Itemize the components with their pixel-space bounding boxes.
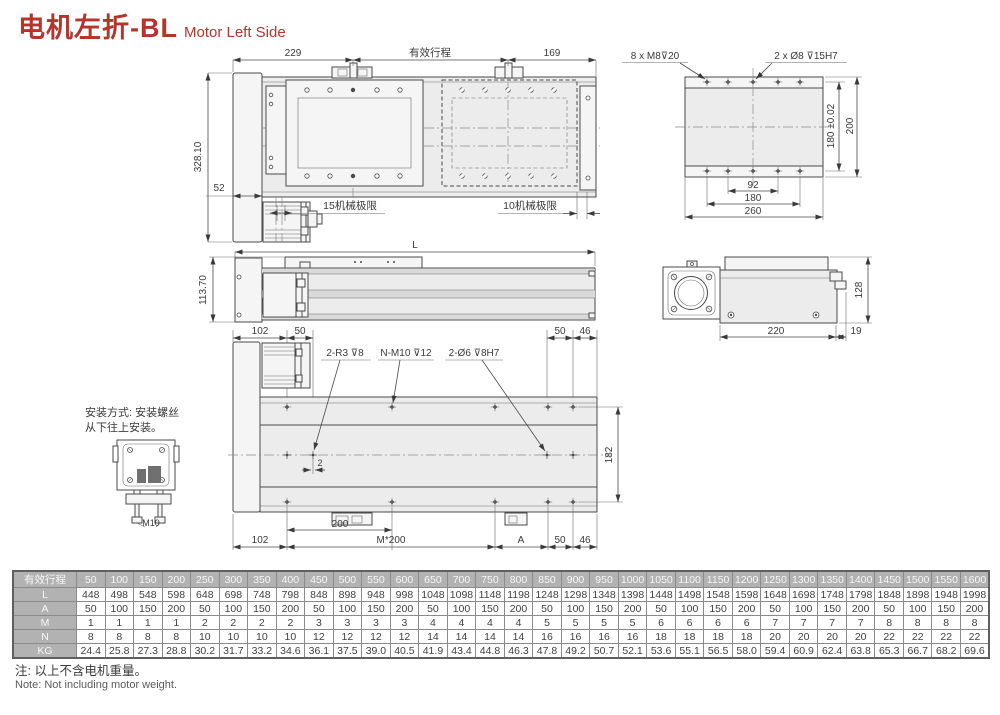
install-note-line2: 从下往上安装。 (85, 420, 162, 434)
table-header-cell: 200 (162, 571, 191, 588)
table-cell: 6 (732, 616, 761, 630)
dim-92: 92 (747, 180, 759, 191)
table-cell: 8 (932, 616, 961, 630)
table-header-cell: 400 (276, 571, 305, 588)
table-cell: 150 (362, 602, 391, 616)
install-note-line1: 安装方式: 安装螺丝 (85, 405, 179, 419)
table-header-cell: 1600 (960, 571, 989, 588)
table-header-cell: 1500 (903, 571, 932, 588)
table-cell: 1198 (504, 588, 533, 602)
table-cell: 200 (504, 602, 533, 616)
table-header-cell: 100 (105, 571, 134, 588)
table-cell: 1998 (960, 588, 989, 602)
table-cell: 46.3 (504, 644, 533, 659)
table-header-cell: 800 (504, 571, 533, 588)
table-cell: 7 (789, 616, 818, 630)
label-m8-holes: 8 x M8⊽20 (631, 51, 680, 62)
dim-2: 2 (317, 458, 322, 468)
table-row-header: L (13, 588, 77, 602)
limit-switch (332, 63, 523, 78)
dim-200-end: 200 (845, 117, 856, 134)
table-cell: 22 (875, 630, 904, 644)
table-cell: 1 (162, 616, 191, 630)
table-cell: 27.3 (134, 644, 163, 659)
table-cell: 58.0 (732, 644, 761, 659)
table-cell: 1098 (447, 588, 476, 602)
table-cell: 55.1 (675, 644, 704, 659)
table-cell: 20 (846, 630, 875, 644)
table-header-cell: 750 (476, 571, 505, 588)
table-cell: 200 (732, 602, 761, 616)
table-cell: 50 (305, 602, 334, 616)
table-cell: 200 (162, 602, 191, 616)
table-cell: 63.8 (846, 644, 875, 659)
table-cell: 5 (533, 616, 562, 630)
table-cell: 200 (276, 602, 305, 616)
table-cell: 100 (105, 602, 134, 616)
footnote-zh: 注: 以上不含电机重量。 (15, 664, 177, 678)
dim-102-bottom: 102 (252, 535, 269, 546)
table-cell: 5 (618, 616, 647, 630)
table-header-cell: 1200 (732, 571, 761, 588)
table-cell: 50.7 (590, 644, 619, 659)
table-cell: 43.4 (447, 644, 476, 659)
table-cell: 898 (333, 588, 362, 602)
table-cell: 33.2 (248, 644, 277, 659)
table-cell: 12 (305, 630, 334, 644)
table-cell: 1048 (419, 588, 448, 602)
table-cell: 4 (419, 616, 448, 630)
table-row-strokes: 有效行程501001502002503003504004505005506006… (13, 571, 989, 588)
table-cell: 100 (789, 602, 818, 616)
table-cell: 22 (932, 630, 961, 644)
table-cell: 200 (618, 602, 647, 616)
table-cell: 41.9 (419, 644, 448, 659)
table-cell: 14 (476, 630, 505, 644)
table-cell: 10 (276, 630, 305, 644)
table-cell: 648 (191, 588, 220, 602)
table-cell: 6 (675, 616, 704, 630)
table-cell: 1148 (476, 588, 505, 602)
dim-19: 19 (850, 326, 862, 337)
dim-L: L (412, 240, 418, 251)
table-cell: 200 (390, 602, 419, 616)
dim-A: A (518, 535, 525, 546)
table-cell: 1548 (704, 588, 733, 602)
table-cell: 1 (105, 616, 134, 630)
table-cell: 8 (903, 616, 932, 630)
technical-drawing: 229 有效行程 169 328.10 52 15机械极限 10机械极限 (0, 0, 1000, 566)
table-row-L: L448498548598648698748798848898948998104… (13, 588, 989, 602)
dim-200-bottom: 200 (332, 519, 349, 530)
label-r3: 2-R3 ⊽8 (326, 348, 364, 359)
table-cell: 24.4 (77, 644, 106, 659)
motor-bottom (262, 343, 310, 388)
table-cell: 18 (704, 630, 733, 644)
table-cell: 14 (504, 630, 533, 644)
table-cell: 7 (761, 616, 790, 630)
table-cell: 200 (960, 602, 989, 616)
table-cell: 52.1 (618, 644, 647, 659)
table-cell: 18 (647, 630, 676, 644)
table-cell: 100 (447, 602, 476, 616)
dim-52: 52 (213, 183, 225, 194)
table-cell: 28.8 (162, 644, 191, 659)
table-cell: 49.2 (561, 644, 590, 659)
table-cell: 2 (276, 616, 305, 630)
page-title: 电机左折-BLMotor Left Side (18, 6, 286, 45)
table-cell: 8 (162, 630, 191, 644)
table-cell: 5 (561, 616, 590, 630)
table-cell: 47.8 (533, 644, 562, 659)
table-cell: 22 (960, 630, 989, 644)
dim-180-tol: 180 ±0.02 (826, 103, 837, 148)
dim-220: 220 (768, 326, 785, 337)
table-cell: 3 (333, 616, 362, 630)
table-cell: 2 (219, 616, 248, 630)
table-cell: 998 (390, 588, 419, 602)
table-cell: 50 (191, 602, 220, 616)
table-cell: 39.0 (362, 644, 391, 659)
limit-left-label: 15机械极限 (323, 199, 377, 212)
table-cell: 50 (77, 602, 106, 616)
table-row-header: A (13, 602, 77, 616)
table-cell: 12 (333, 630, 362, 644)
dim-113: 113.70 (198, 275, 209, 305)
table-cell: 2 (248, 616, 277, 630)
table-cell: 4 (476, 616, 505, 630)
table-cell: 14 (447, 630, 476, 644)
dim-229: 229 (285, 48, 302, 59)
table-header-cell: 850 (533, 571, 562, 588)
table-cell: 1898 (903, 588, 932, 602)
table-cell: 8 (960, 616, 989, 630)
table-row-N: N888810101010121212121414141416161616181… (13, 630, 989, 644)
table-cell: 6 (704, 616, 733, 630)
table-cell: 50 (419, 602, 448, 616)
table-header-cell: 150 (134, 571, 163, 588)
table-cell: 14 (419, 630, 448, 644)
table-cell: 20 (818, 630, 847, 644)
table-cell: 6 (647, 616, 676, 630)
table-header-cell: 550 (362, 571, 391, 588)
motor-end-view: 128 220 19 (663, 257, 872, 341)
table-cell: 8 (105, 630, 134, 644)
table-header-cell: 650 (419, 571, 448, 588)
table-header-cell: 1300 (789, 571, 818, 588)
table-cell: 1398 (618, 588, 647, 602)
table-header-cell: 600 (390, 571, 419, 588)
table-cell: 1248 (533, 588, 562, 602)
table-cell: 150 (248, 602, 277, 616)
limit-right-label: 10机械极限 (503, 199, 557, 212)
table-cell: 1798 (846, 588, 875, 602)
table-cell: 69.6 (960, 644, 989, 659)
table-cell: 2 (191, 616, 220, 630)
table-header-cell: 350 (248, 571, 277, 588)
table-header-cell: 700 (447, 571, 476, 588)
table-cell: 1348 (590, 588, 619, 602)
table-cell: 36.1 (305, 644, 334, 659)
motor-top (263, 197, 322, 242)
table-header-cell: 300 (219, 571, 248, 588)
table-cell: 50 (875, 602, 904, 616)
table-cell: 150 (818, 602, 847, 616)
table-cell: 16 (590, 630, 619, 644)
table-cell: 100 (561, 602, 590, 616)
table-cell: 100 (675, 602, 704, 616)
footnote: 注: 以上不含电机重量。 Note: Not including motor w… (15, 664, 177, 692)
label-dowel-bottom: 2-Ø6 ⊽8H7 (449, 348, 500, 359)
dim-128: 128 (854, 281, 865, 298)
table-cell: 53.6 (647, 644, 676, 659)
table-row-KG: KG24.425.827.328.830.231.733.234.636.137… (13, 644, 989, 659)
table-header-cell: 500 (333, 571, 362, 588)
footnote-en: Note: Not including motor weight. (15, 678, 177, 692)
table-header-cell: 450 (305, 571, 334, 588)
table-cell: 1 (77, 616, 106, 630)
table-header-cell: 250 (191, 571, 220, 588)
table-cell: 56.5 (704, 644, 733, 659)
table-cell: 150 (590, 602, 619, 616)
table-cell: 7 (818, 616, 847, 630)
table-cell: 50 (647, 602, 676, 616)
table-cell: 4 (447, 616, 476, 630)
label-dowel-holes: 2 x Ø8 ⊽15H7 (774, 51, 838, 62)
table-cell: 8 (875, 616, 904, 630)
dim-46-bottom-right: 46 (579, 535, 591, 546)
table-cell: 50 (761, 602, 790, 616)
table-cell: 1648 (761, 588, 790, 602)
table-row-header: M (13, 616, 77, 630)
table-cell: 748 (248, 588, 277, 602)
table-cell: 10 (248, 630, 277, 644)
table-cell: 3 (390, 616, 419, 630)
table-cell: 62.4 (818, 644, 847, 659)
table-cell: 68.2 (932, 644, 961, 659)
table-cell: 30.2 (191, 644, 220, 659)
table-cell: 18 (675, 630, 704, 644)
table-cell: 50 (533, 602, 562, 616)
table-cell: 12 (390, 630, 419, 644)
table-cell: 498 (105, 588, 134, 602)
table-cell: 150 (134, 602, 163, 616)
dim-46-top-right: 46 (579, 326, 591, 337)
table-cell: 200 (846, 602, 875, 616)
table-cell: 34.6 (276, 644, 305, 659)
dim-180: 180 (745, 193, 762, 204)
table-header-cell: 900 (561, 571, 590, 588)
table-cell: 12 (362, 630, 391, 644)
dim-stroke-label: 有效行程 (409, 46, 451, 59)
dim-m200: M*200 (377, 535, 406, 546)
table-cell: 4 (504, 616, 533, 630)
table-header-cell: 1550 (932, 571, 961, 588)
table-header-cell: 1150 (704, 571, 733, 588)
dim-50-top-left: 50 (294, 326, 306, 337)
table-cell: 1 (134, 616, 163, 630)
table-cell: 10 (219, 630, 248, 644)
table-header-cell: 1250 (761, 571, 790, 588)
table-cell: 60.9 (789, 644, 818, 659)
label-m10: N-M10 ⊽12 (380, 348, 432, 359)
table-cell: 66.7 (903, 644, 932, 659)
table-cell: 100 (333, 602, 362, 616)
table-header-cell: 50 (77, 571, 106, 588)
table-cell: 3 (362, 616, 391, 630)
table-cell: 948 (362, 588, 391, 602)
table-cell: 1598 (732, 588, 761, 602)
dim-328: 328.10 (193, 141, 204, 172)
carriage-plate (286, 80, 423, 186)
table-cell: 598 (162, 588, 191, 602)
table-cell: 798 (276, 588, 305, 602)
table-cell: 16 (618, 630, 647, 644)
table-cell: 20 (789, 630, 818, 644)
datasheet-page: 229 有效行程 169 328.10 52 15机械极限 10机械极限 (0, 0, 1000, 715)
table-cell: 1698 (789, 588, 818, 602)
dim-50-bottom-right: 50 (554, 535, 566, 546)
table-header-cell: 1100 (675, 571, 704, 588)
table-header-cell: 1350 (818, 571, 847, 588)
table-cell: 59.4 (761, 644, 790, 659)
spec-table-body: 有效行程501001502002503003504004505005506006… (13, 571, 989, 658)
table-header-cell: 1050 (647, 571, 676, 588)
table-corner-cell: 有效行程 (13, 571, 77, 588)
table-cell: 698 (219, 588, 248, 602)
table-cell: 40.5 (390, 644, 419, 659)
table-cell: 1498 (675, 588, 704, 602)
table-cell: 848 (305, 588, 334, 602)
table-cell: 10 (191, 630, 220, 644)
table-header-cell: 1450 (875, 571, 904, 588)
dim-260: 260 (745, 206, 762, 217)
install-detail: 安装方式: 安装螺丝 从下往上安装。 M10 (85, 405, 179, 528)
table-cell: 16 (533, 630, 562, 644)
table-header-cell: 1400 (846, 571, 875, 588)
dim-182: 182 (604, 446, 615, 463)
table-cell: 31.7 (219, 644, 248, 659)
top-view: 229 有效行程 169 328.10 52 15机械极限 10机械极限 (193, 46, 600, 242)
table-header-cell: 950 (590, 571, 619, 588)
table-cell: 1848 (875, 588, 904, 602)
table-cell: 16 (561, 630, 590, 644)
table-cell: 100 (903, 602, 932, 616)
table-cell: 44.8 (476, 644, 505, 659)
dim-50-top-right: 50 (554, 326, 566, 337)
table-cell: 1948 (932, 588, 961, 602)
table-cell: 150 (476, 602, 505, 616)
table-cell: 25.8 (105, 644, 134, 659)
table-cell: 1298 (561, 588, 590, 602)
table-cell: 65.3 (875, 644, 904, 659)
table-header-cell: 1000 (618, 571, 647, 588)
bottom-view: 102 50 50 46 (228, 326, 623, 550)
title-en: Motor Left Side (184, 24, 286, 41)
title-zh: 电机左折-BL (18, 13, 178, 43)
table-cell: 1748 (818, 588, 847, 602)
table-cell: 150 (704, 602, 733, 616)
table-cell: 22 (903, 630, 932, 644)
table-cell: 37.5 (333, 644, 362, 659)
dim-102-top: 102 (252, 326, 269, 337)
table-cell: 150 (932, 602, 961, 616)
table-cell: 5 (590, 616, 619, 630)
table-cell: 100 (219, 602, 248, 616)
table-cell: 18 (732, 630, 761, 644)
table-cell: 548 (134, 588, 163, 602)
table-cell: 1448 (647, 588, 676, 602)
table-row-header: N (13, 630, 77, 644)
table-cell: 448 (77, 588, 106, 602)
dim-169: 169 (544, 48, 561, 59)
table-cell: 7 (846, 616, 875, 630)
table-cell: 8 (77, 630, 106, 644)
bolt-label-m10: M10 (142, 518, 160, 528)
end-view: 8 x M8⊽20 2 x Ø8 ⊽15H7 180 ±0.02 200 92 (622, 51, 862, 220)
table-cell: 20 (761, 630, 790, 644)
table-cell: 8 (134, 630, 163, 644)
table-row-A: A501001502005010015020050100150200501001… (13, 602, 989, 616)
table-row-M: M11112222333344445555666677778888 (13, 616, 989, 630)
table-cell: 3 (305, 616, 334, 630)
table-row-header: KG (13, 644, 77, 659)
spec-table: 有效行程501001502002503003504004505005506006… (12, 570, 990, 659)
side-view: L (198, 240, 595, 322)
